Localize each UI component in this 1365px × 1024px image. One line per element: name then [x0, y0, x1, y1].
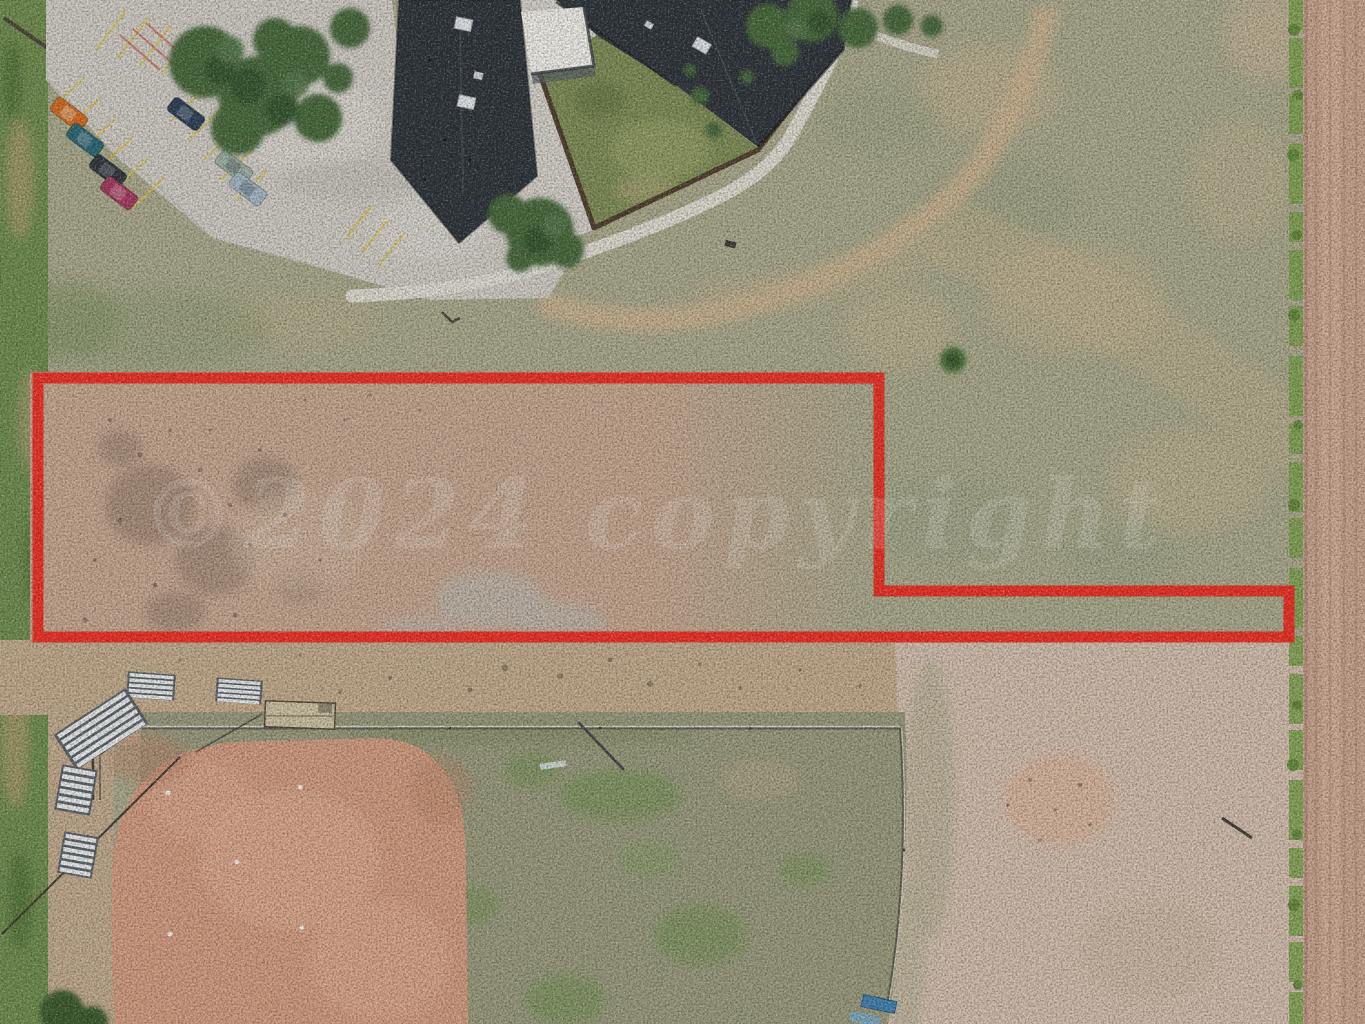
photo-grain	[0, 0, 1365, 1024]
aerial-photo: ©2024 copyright	[0, 0, 1365, 1024]
